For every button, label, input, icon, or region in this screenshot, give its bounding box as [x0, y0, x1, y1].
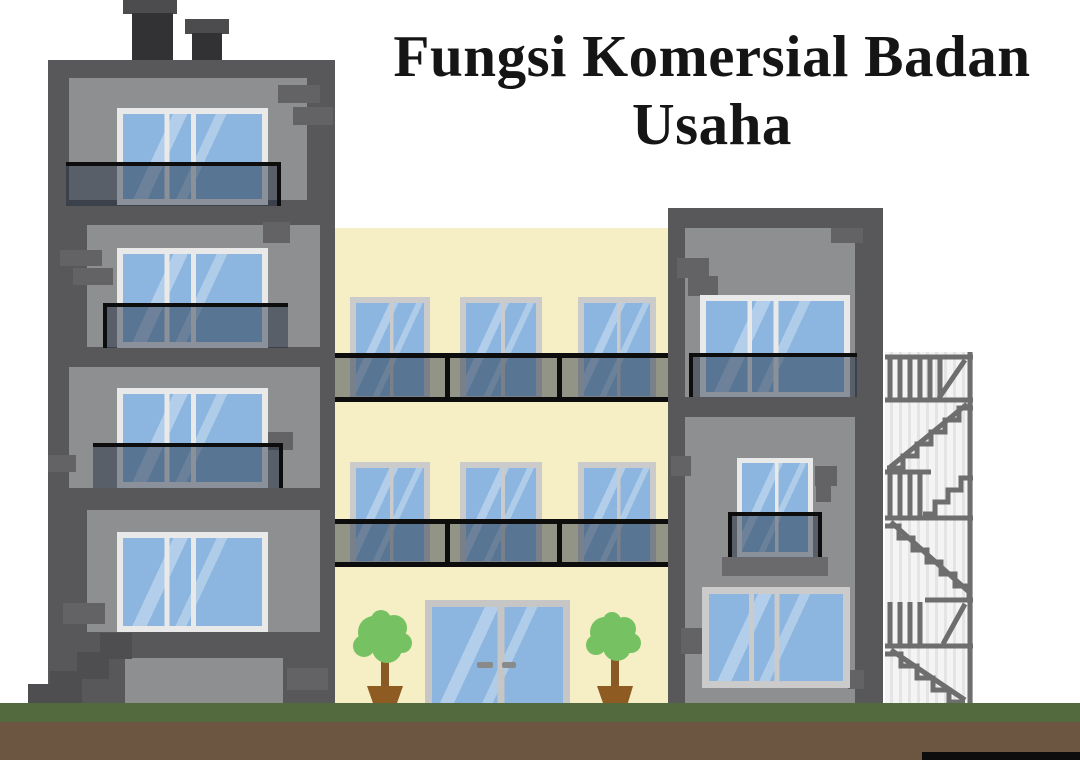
- fire-escape: [885, 352, 973, 704]
- brick-accent: [63, 603, 105, 624]
- right-building: [668, 208, 883, 710]
- brick-accent: [681, 628, 703, 654]
- potted-tree: [350, 610, 420, 706]
- balcony-divider: [557, 353, 562, 402]
- ground-soil-strip: [0, 722, 1080, 760]
- balcony-platform: [722, 557, 828, 576]
- slide-title: Fungsi Komersial Badan Usaha: [338, 22, 1080, 159]
- chimney-stack: [132, 13, 173, 61]
- ground-grass-strip: [0, 703, 1080, 722]
- door-handle: [477, 662, 493, 668]
- left-building: [28, 0, 335, 710]
- balcony-divider: [557, 519, 562, 567]
- balcony-divider: [445, 519, 450, 567]
- window: [117, 532, 268, 632]
- window-glass: [123, 538, 262, 626]
- entry-step: [28, 684, 80, 703]
- brick-accent: [73, 268, 113, 285]
- window: [702, 587, 850, 688]
- entrance-door: [425, 600, 570, 710]
- chimney-cap: [185, 19, 229, 34]
- brick-accent: [688, 276, 718, 296]
- door-handle: [502, 662, 516, 668]
- brick-accent: [278, 85, 320, 103]
- door-glass: [432, 607, 563, 703]
- chimney-stack: [192, 33, 222, 61]
- brick-accent: [287, 668, 328, 690]
- brick-accent: [831, 228, 863, 243]
- juliet-balcony: [728, 512, 822, 557]
- title-line-1: Fungsi Komersial Badan: [338, 22, 1080, 90]
- glass-balcony: [689, 353, 857, 398]
- brick-accent: [60, 250, 102, 266]
- brick-accent: [671, 456, 691, 476]
- floor-divider: [685, 397, 863, 417]
- brick-accent: [815, 466, 837, 486]
- title-line-2: Usaha: [338, 90, 1080, 158]
- brick-accent: [677, 258, 709, 278]
- footer-accent-bar: [922, 752, 1080, 760]
- glass-balcony: [66, 162, 281, 206]
- glass-balcony: [103, 303, 288, 348]
- brick-accent: [263, 222, 290, 243]
- chimney-cap: [123, 0, 177, 14]
- left-building-base-panel: [125, 658, 283, 703]
- middle-building: [335, 228, 670, 710]
- glass-balcony: [93, 443, 283, 488]
- balcony-band: [335, 353, 670, 402]
- brick-accent: [816, 485, 831, 502]
- balcony-divider: [445, 353, 450, 402]
- brick-accent: [848, 670, 864, 689]
- brick-accent: [293, 107, 333, 125]
- slide-canvas: Fungsi Komersial Badan Usaha: [0, 0, 1080, 760]
- potted-tree: [583, 612, 647, 706]
- window-glass: [709, 594, 843, 681]
- balcony-band: [335, 519, 670, 567]
- brick-accent: [48, 455, 76, 472]
